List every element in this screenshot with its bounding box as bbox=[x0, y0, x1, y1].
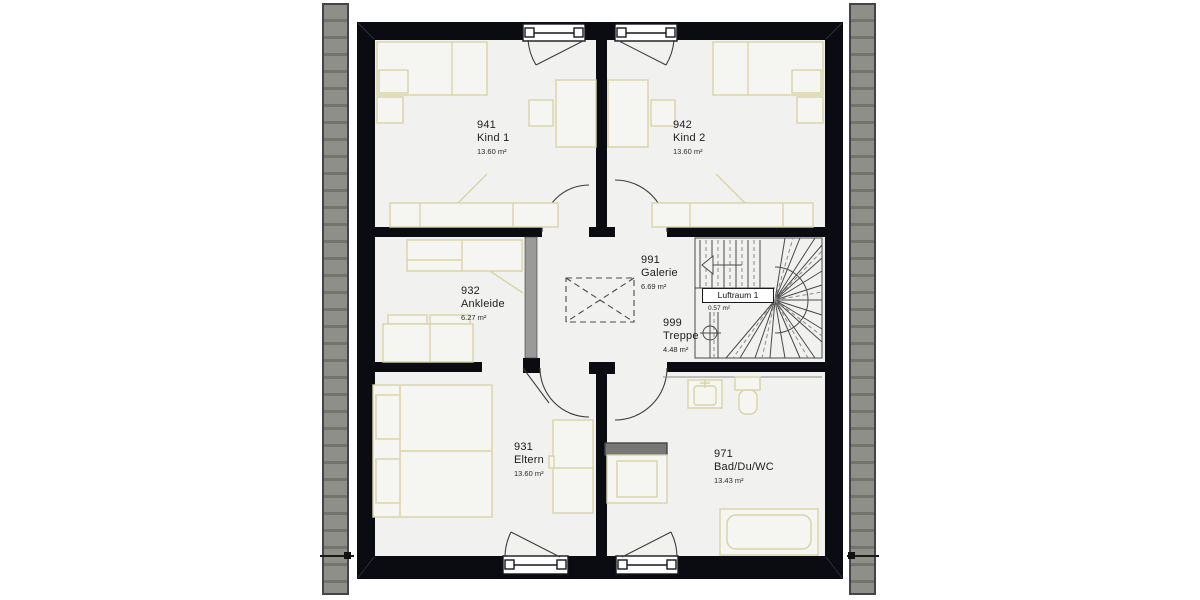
floorplan-canvas: 941 Kind 1 13.60 m² 942 Kind 2 13.60 m² … bbox=[0, 0, 1200, 600]
shower bbox=[605, 443, 667, 503]
void-label-area: 0.57 m² bbox=[708, 305, 730, 312]
wall-center-lower bbox=[596, 374, 607, 556]
wall-exterior-top bbox=[357, 22, 843, 40]
room-area: 4.48 m² bbox=[663, 345, 699, 354]
wall-mid-lower-right bbox=[667, 362, 825, 372]
room-label-kind1: 941 Kind 1 13.60 m² bbox=[477, 119, 509, 156]
room-area: 13.60 m² bbox=[673, 147, 705, 156]
wall-partition-gray bbox=[525, 237, 537, 358]
room-label-eltern: 931 Eltern 13.60 m² bbox=[514, 441, 544, 478]
desk-kind2 bbox=[608, 80, 648, 147]
chair-kind1 bbox=[529, 100, 553, 126]
bathtub bbox=[720, 509, 818, 555]
void-label-box: Luftraum 1 bbox=[702, 288, 774, 303]
chair-kind2 bbox=[651, 100, 675, 126]
wall-center-upper bbox=[596, 40, 607, 227]
wall-exterior-bottom bbox=[357, 556, 843, 579]
shower-wall bbox=[605, 443, 667, 455]
window-bad-bottom bbox=[616, 556, 678, 574]
room-id: 999 bbox=[663, 317, 699, 330]
desk-kind1 bbox=[556, 80, 596, 147]
nightstand-kind1 bbox=[377, 97, 403, 123]
room-area: 13.60 m² bbox=[514, 469, 544, 478]
room-area: 13.60 m² bbox=[477, 147, 509, 156]
nightstand-kind2 bbox=[797, 97, 823, 123]
window-kind1-top bbox=[523, 24, 585, 41]
room-name: Galerie bbox=[641, 267, 678, 280]
room-label-ankleide: 932 Ankleide 6.27 m² bbox=[461, 285, 505, 322]
toilet bbox=[735, 377, 760, 414]
room-name: Treppe bbox=[663, 330, 699, 343]
washbasin bbox=[688, 379, 722, 408]
room-label-treppe: 999 Treppe 4.48 m² bbox=[663, 317, 699, 354]
wall-mid-upper-stub bbox=[589, 227, 615, 237]
wardrobe-kind1 bbox=[390, 203, 558, 227]
room-id: 932 bbox=[461, 285, 505, 298]
room-name: Ankleide bbox=[461, 298, 505, 311]
wardrobe-kind2 bbox=[652, 203, 813, 227]
window-eltern-bottom bbox=[503, 556, 568, 574]
room-id: 931 bbox=[514, 441, 544, 454]
room-id: 942 bbox=[673, 119, 705, 132]
wardrobe-ankleide-bottom bbox=[383, 324, 473, 362]
room-label-galerie: 991 Galerie 6.69 m² bbox=[641, 254, 678, 291]
room-area: 13.43 m² bbox=[714, 476, 774, 485]
room-name: Eltern bbox=[514, 454, 544, 467]
room-name: Bad/Du/WC bbox=[714, 461, 774, 474]
floorplan-drawing bbox=[0, 0, 1200, 600]
wall-exterior-left bbox=[357, 22, 375, 579]
room-name: Kind 2 bbox=[673, 132, 705, 145]
room-label-bad: 971 Bad/Du/WC 13.43 m² bbox=[714, 448, 774, 485]
room-label-kind2: 942 Kind 2 13.60 m² bbox=[673, 119, 705, 156]
window-kind2-top bbox=[615, 24, 677, 41]
room-id: 971 bbox=[714, 448, 774, 461]
room-id: 991 bbox=[641, 254, 678, 267]
wall-exterior-right bbox=[825, 22, 843, 579]
wardrobe-ankleide-top bbox=[407, 240, 522, 271]
room-area: 6.69 m² bbox=[641, 282, 678, 291]
room-area: 6.27 m² bbox=[461, 313, 505, 322]
wall-mid-upper-right bbox=[667, 227, 825, 237]
wardrobe-eltern bbox=[553, 420, 593, 513]
wall-mid-lower-left bbox=[375, 362, 482, 372]
wall-mid-upper-left bbox=[375, 227, 542, 237]
room-id: 941 bbox=[477, 119, 509, 132]
wall-mid-lower-stub bbox=[589, 362, 615, 374]
room-name: Kind 1 bbox=[477, 132, 509, 145]
